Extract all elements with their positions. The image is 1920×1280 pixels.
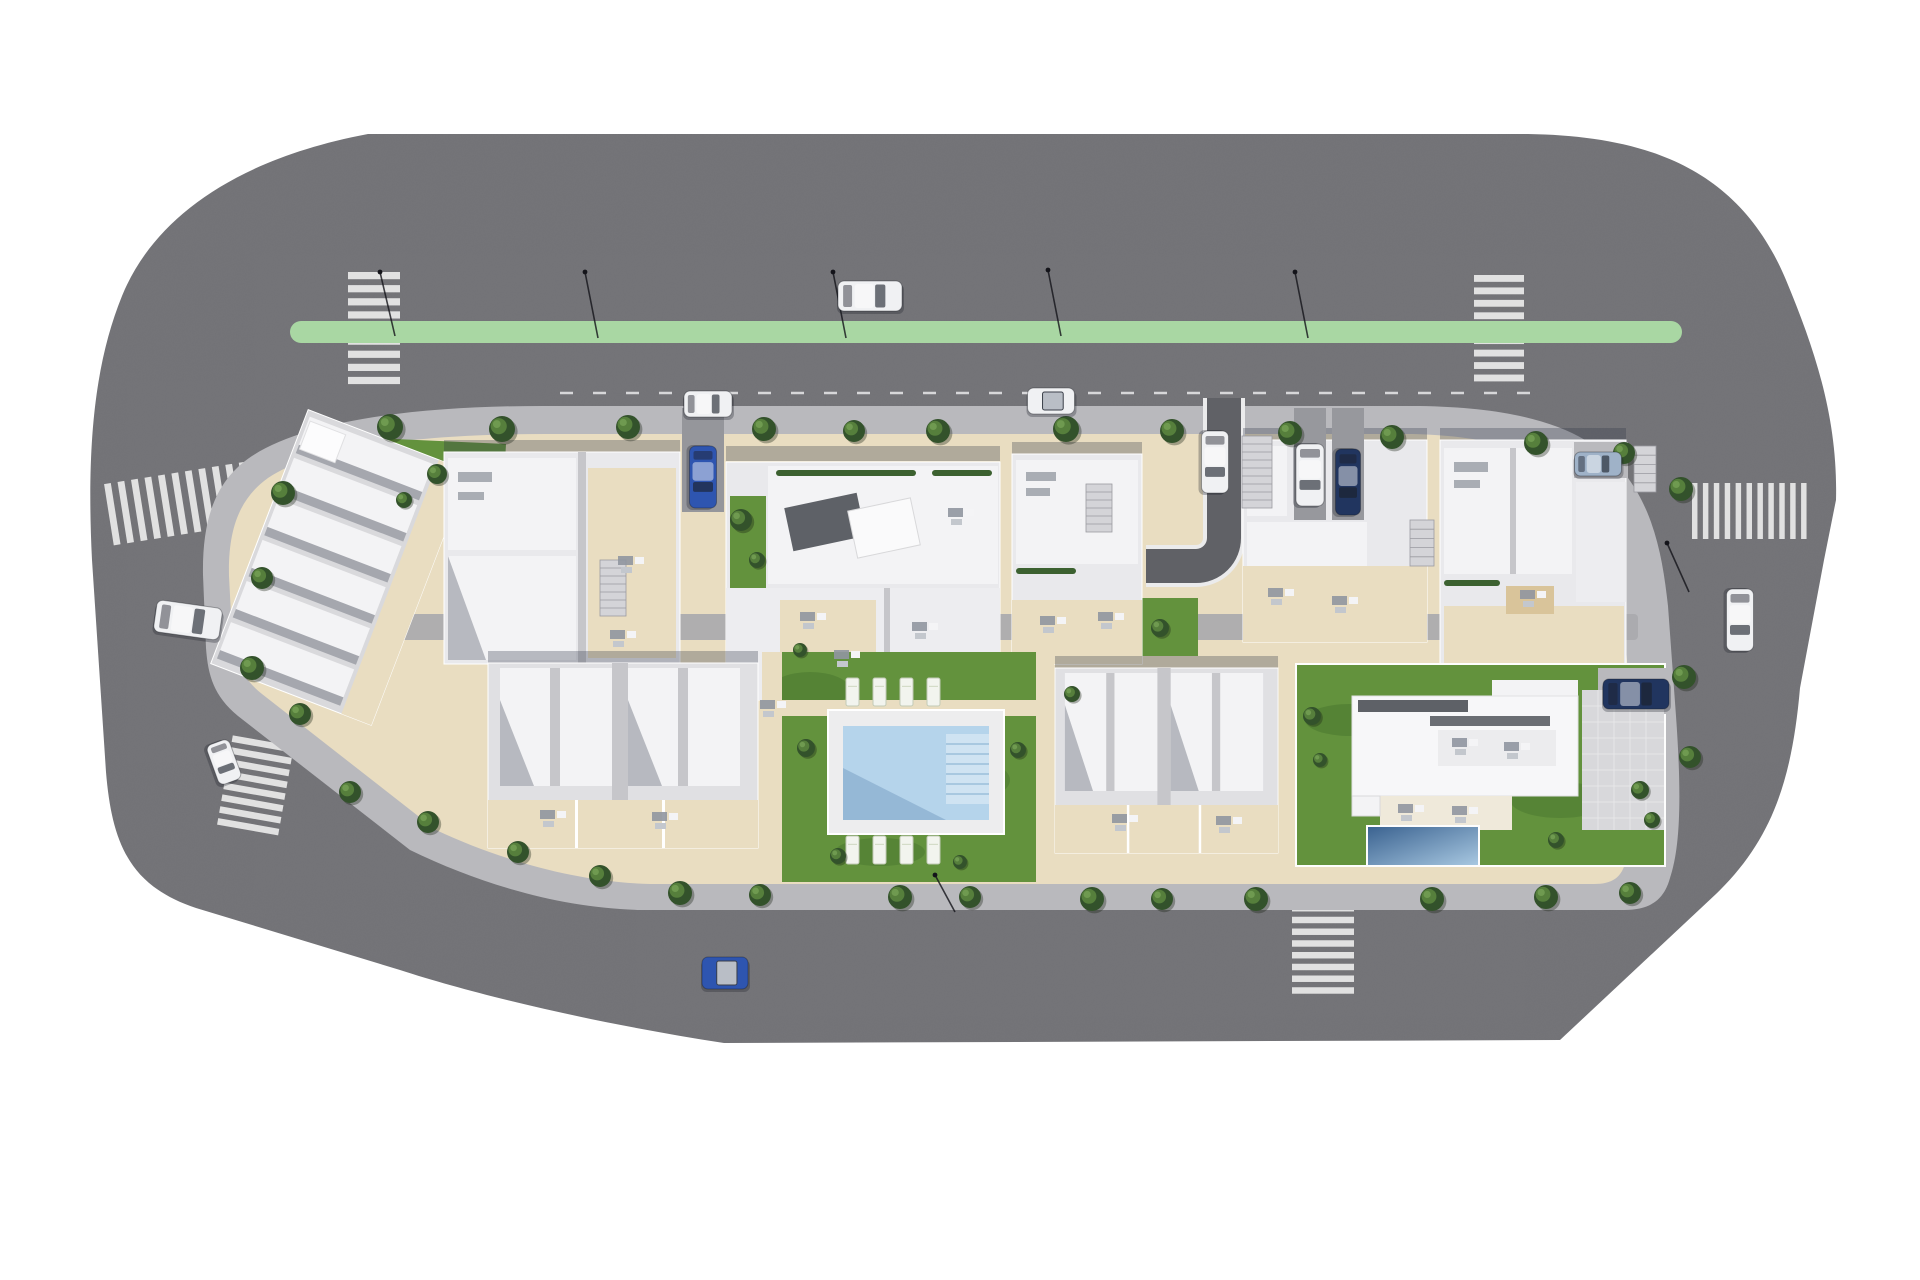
- car-navy-villa-pad: [1602, 679, 1671, 712]
- sun-lounger: [846, 836, 859, 864]
- exterior-stairs: [1410, 520, 1434, 566]
- villa-upper-wing: [1492, 680, 1578, 698]
- sun-lounger: [927, 836, 940, 864]
- garden-path-right: [1036, 652, 1054, 882]
- green-cycle-lane: [290, 321, 1682, 343]
- community-pool: [828, 710, 1004, 834]
- building-apartment-1: [444, 440, 680, 664]
- building-duplex-left: [488, 651, 758, 848]
- villa-roof-terrace: [1438, 730, 1556, 766]
- sun-lounger: [873, 678, 886, 706]
- site-plan-render: [0, 0, 1920, 1280]
- villa-private-pool: [1367, 826, 1479, 866]
- sun-lounger: [900, 836, 913, 864]
- villa-steps: [1352, 796, 1380, 816]
- exterior-stairs: [1242, 436, 1272, 508]
- exterior-stairs: [1634, 446, 1656, 492]
- car-white-curve-driveway: [1199, 430, 1229, 495]
- sun-lounger: [900, 678, 913, 706]
- sun-lounger: [873, 836, 886, 864]
- car-blue-driveway: [687, 445, 717, 510]
- car-white-driving-top-road: [837, 281, 904, 314]
- car-navy-suv-driveway: [1333, 448, 1361, 517]
- sun-lounger: [927, 678, 940, 706]
- car-white-van-driveway: [1293, 443, 1324, 508]
- building-duplex-right: [1055, 656, 1278, 853]
- building-apartment-3: [1012, 442, 1142, 664]
- roof-hedge: [1444, 580, 1500, 586]
- car-blue-bottom-road: [701, 957, 750, 992]
- roof-hedge: [932, 470, 992, 476]
- sun-lounger: [846, 678, 859, 706]
- car-white-convertible-parked: [1027, 388, 1077, 417]
- garden-path-left: [762, 652, 782, 882]
- car-white-right-road: [1724, 588, 1754, 653]
- roof-hedge: [1016, 568, 1076, 574]
- car-silver-parked-pad: [1574, 452, 1624, 479]
- car-white-parked-top-lane: [683, 391, 734, 420]
- site-plan-canvas: [0, 0, 1920, 1280]
- exterior-stairs: [1086, 484, 1112, 532]
- roof-hedge: [776, 470, 916, 476]
